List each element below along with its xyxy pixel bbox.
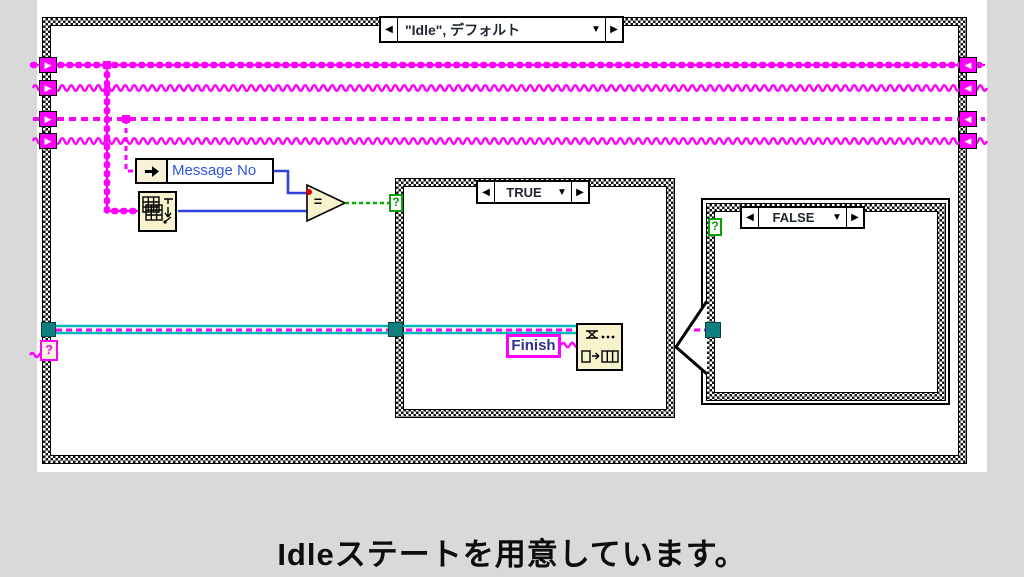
input-tunnel-2[interactable]: ▶: [39, 80, 57, 96]
case-increment-arrow[interactable]: ▶: [605, 18, 622, 41]
message-no-node[interactable]: Message No: [135, 158, 274, 184]
finish-string-constant[interactable]: Finish: [506, 334, 561, 358]
output-tunnel-3[interactable]: ◀: [959, 111, 977, 127]
input-tunnel-1[interactable]: ▶: [39, 57, 57, 73]
queue-tunnel-false-case[interactable]: [705, 322, 721, 338]
enqueue-element-node[interactable]: [576, 323, 623, 371]
tunnel-arrow-icon: ▶: [45, 136, 52, 146]
tunnel-arrow-icon: ◀: [965, 136, 972, 146]
false-case-structure-border[interactable]: [706, 203, 946, 401]
outer-case-selector-label[interactable]: ◀ "Idle", デフォルト ▼ ▶: [379, 16, 624, 43]
case-dropdown-arrow-icon[interactable]: ▼: [828, 208, 846, 227]
enqueue-icon: [578, 325, 621, 369]
tunnel-arrow-icon: ◀: [965, 83, 972, 93]
false-case-interior: [714, 211, 938, 393]
false-case-name[interactable]: FALSE: [759, 208, 828, 227]
outer-case-selector-terminal[interactable]: ?: [40, 340, 58, 361]
true-case-selector-label[interactable]: ◀ TRUE ▼ ▶: [476, 180, 590, 204]
equal-node[interactable]: =: [306, 194, 330, 210]
array-function-node[interactable]: [138, 191, 177, 232]
outer-case-name[interactable]: "Idle", デフォルト: [398, 18, 587, 41]
array-grid-icon: [140, 193, 175, 230]
message-no-label: Message No: [168, 160, 272, 182]
input-tunnel-3[interactable]: ▶: [39, 111, 57, 127]
false-case-selector-label[interactable]: ◀ FALSE ▼ ▶: [740, 206, 865, 229]
false-case-selector-terminal[interactable]: ?: [708, 218, 722, 236]
queue-tunnel-true-case[interactable]: [388, 322, 403, 337]
case-dropdown-arrow-icon[interactable]: ▼: [553, 182, 571, 202]
unbundle-arrow-icon: [137, 160, 168, 182]
tunnel-arrow-icon: ◀: [965, 114, 972, 124]
tunnel-arrow-icon: ▶: [45, 60, 52, 70]
output-tunnel-4[interactable]: ◀: [959, 133, 977, 149]
output-tunnel-2[interactable]: ◀: [959, 80, 977, 96]
true-case-structure-border[interactable]: [395, 178, 675, 418]
tunnel-arrow-icon: ▶: [45, 83, 52, 93]
output-tunnel-1[interactable]: ◀: [959, 57, 977, 73]
case-dropdown-arrow-icon[interactable]: ▼: [587, 18, 605, 41]
tunnel-arrow-icon: ▶: [45, 114, 52, 124]
case-decrement-arrow[interactable]: ◀: [381, 18, 398, 41]
case-increment-arrow[interactable]: ▶: [571, 182, 588, 202]
tunnel-arrow-icon: ◀: [965, 60, 972, 70]
input-tunnel-4[interactable]: ▶: [39, 133, 57, 149]
labview-block-diagram-screenshot: { "glyphs": { "arrow_left": "◀", "arrow_…: [0, 0, 1024, 577]
case-decrement-arrow[interactable]: ◀: [742, 208, 759, 227]
true-case-selector-terminal[interactable]: ?: [389, 194, 403, 212]
true-case-interior: [403, 186, 667, 410]
case-increment-arrow[interactable]: ▶: [846, 208, 863, 227]
queue-tunnel-outer-left[interactable]: [41, 322, 56, 337]
caption-text: Idleステートを用意しています。: [0, 529, 1024, 574]
case-decrement-arrow[interactable]: ◀: [478, 182, 495, 202]
true-case-name[interactable]: TRUE: [495, 182, 553, 202]
